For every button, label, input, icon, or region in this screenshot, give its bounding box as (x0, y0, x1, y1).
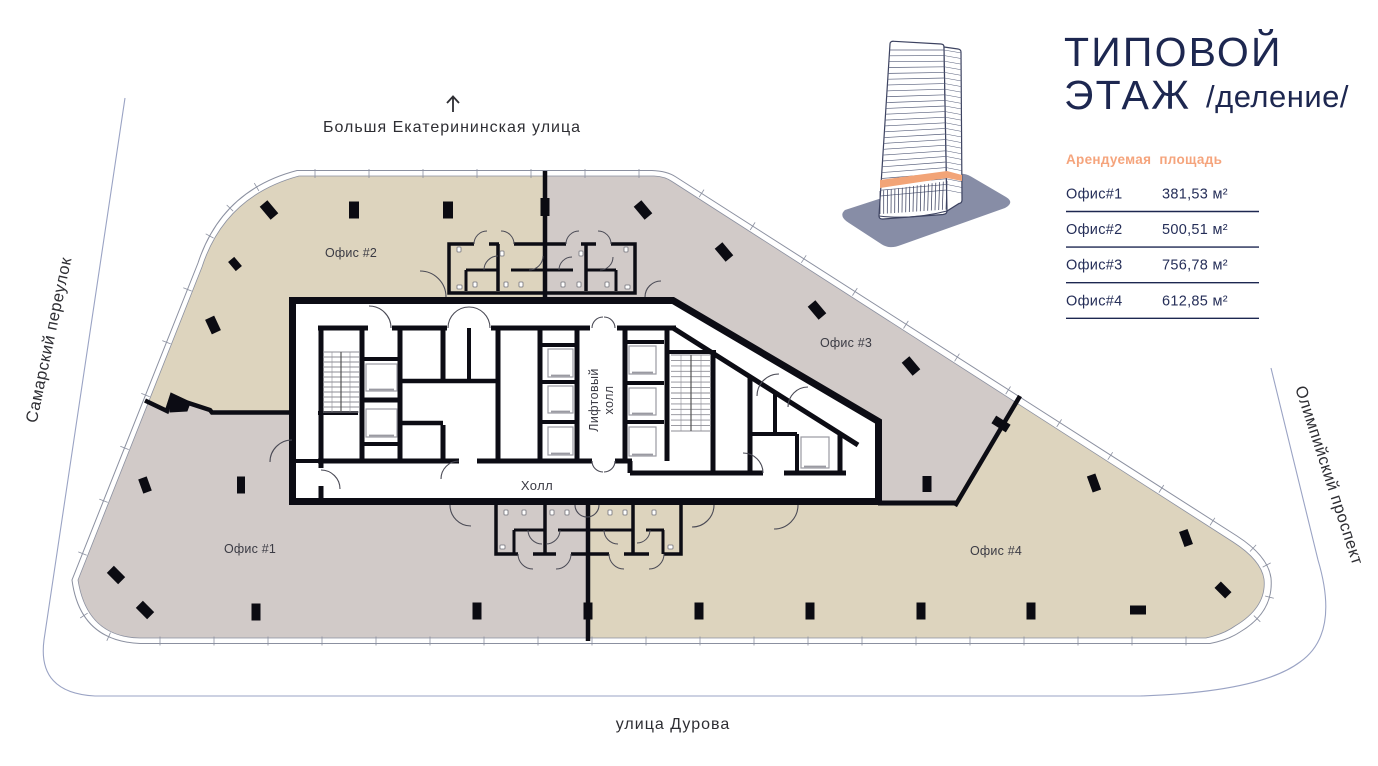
svg-text:улица Дурова: улица Дурова (616, 716, 730, 733)
svg-text:холл: холл (602, 386, 616, 415)
svg-text:Офис#3: Офис#3 (1066, 258, 1123, 274)
svg-text:Офис #1: Офис #1 (224, 542, 276, 556)
svg-text:Лифтовый: Лифтовый (587, 368, 601, 432)
svg-text:Офис #4: Офис #4 (970, 544, 1022, 558)
svg-text:/деление/: /деление/ (1206, 79, 1349, 114)
svg-text:Холл: Холл (521, 478, 553, 493)
svg-text:Офис #3: Офис #3 (820, 336, 872, 350)
svg-text:612,85 м²: 612,85 м² (1162, 293, 1228, 309)
svg-text:ЭТАЖ: ЭТАЖ (1064, 72, 1191, 118)
svg-text:Офис#2: Офис#2 (1066, 222, 1123, 238)
svg-text:381,53 м²: 381,53 м² (1162, 187, 1228, 203)
svg-text:756,78 м²: 756,78 м² (1162, 258, 1228, 274)
svg-text:Большя Екатерининская улица: Большя Екатерининская улица (323, 119, 581, 136)
svg-text:Арендуемая площадь: Арендуемая площадь (1066, 152, 1222, 167)
svg-text:Офис#1: Офис#1 (1066, 187, 1123, 203)
svg-text:500,51 м²: 500,51 м² (1162, 222, 1228, 238)
svg-text:ТИПОВОЙ: ТИПОВОЙ (1064, 29, 1283, 75)
svg-text:Офис#4: Офис#4 (1066, 293, 1123, 309)
svg-text:Офис #2: Офис #2 (325, 246, 377, 260)
